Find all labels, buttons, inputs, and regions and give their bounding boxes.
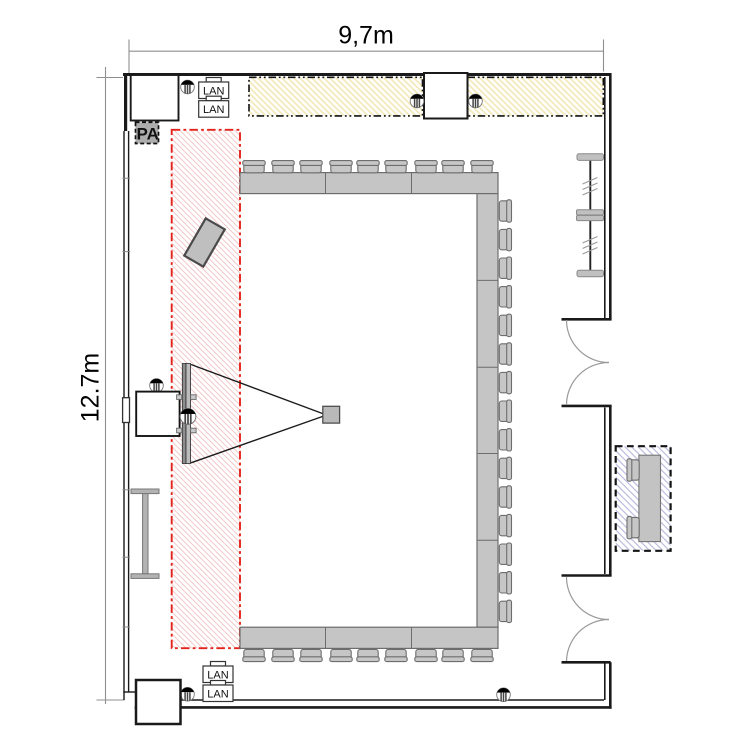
- svg-text:9,7m: 9,7m: [338, 22, 394, 50]
- svg-text:12.7m: 12.7m: [77, 353, 105, 422]
- svg-text:PA: PA: [137, 125, 159, 144]
